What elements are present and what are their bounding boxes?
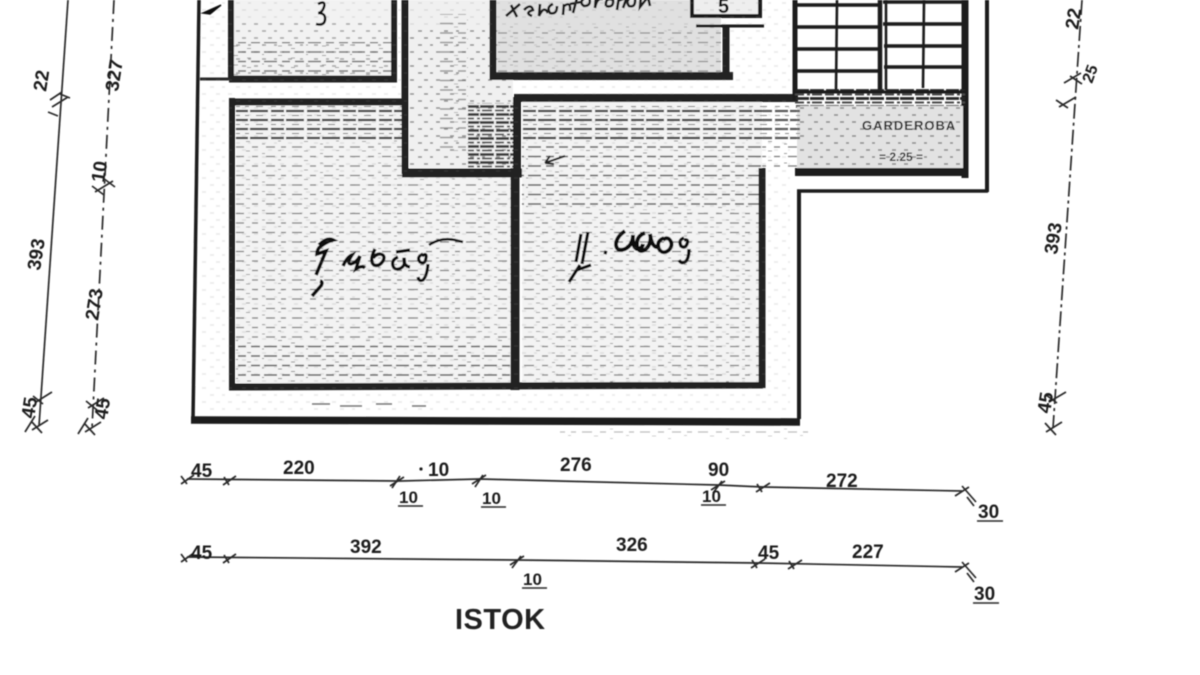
svg-text:45: 45 [18, 395, 42, 420]
svg-text:220: 220 [283, 458, 315, 479]
svg-text:= 2.25 =: = 2.25 = [879, 150, 923, 164]
svg-text:272: 272 [826, 471, 858, 492]
svg-text:45: 45 [1034, 390, 1058, 415]
svg-text:10: 10 [523, 570, 542, 589]
svg-text:GARDEROBA: GARDEROBA [862, 118, 956, 133]
svg-text:327: 327 [102, 58, 128, 93]
svg-text:45: 45 [91, 396, 115, 421]
svg-text:227: 227 [852, 542, 884, 563]
svg-text:30: 30 [974, 584, 995, 605]
svg-text:326: 326 [616, 535, 648, 556]
svg-text:22: 22 [1062, 7, 1086, 31]
svg-text:45: 45 [191, 543, 213, 564]
svg-text:393: 393 [24, 237, 50, 272]
svg-text:90: 90 [708, 460, 729, 481]
svg-text:45: 45 [758, 543, 780, 564]
svg-text:10: 10 [88, 160, 112, 184]
svg-text:22: 22 [30, 69, 54, 93]
svg-text:25: 25 [1080, 63, 1102, 86]
svg-text:45: 45 [191, 461, 213, 482]
svg-text:ISTOK: ISTOK [455, 604, 546, 636]
svg-text:392: 392 [350, 537, 382, 558]
svg-text:10: 10 [428, 460, 449, 481]
svg-text:10: 10 [482, 489, 501, 508]
svg-text:30: 30 [978, 502, 999, 523]
svg-text:10: 10 [399, 488, 418, 507]
svg-text:10: 10 [702, 487, 721, 506]
svg-text:276: 276 [560, 455, 592, 476]
svg-text:393: 393 [1041, 221, 1067, 256]
svg-text:273: 273 [82, 287, 108, 322]
